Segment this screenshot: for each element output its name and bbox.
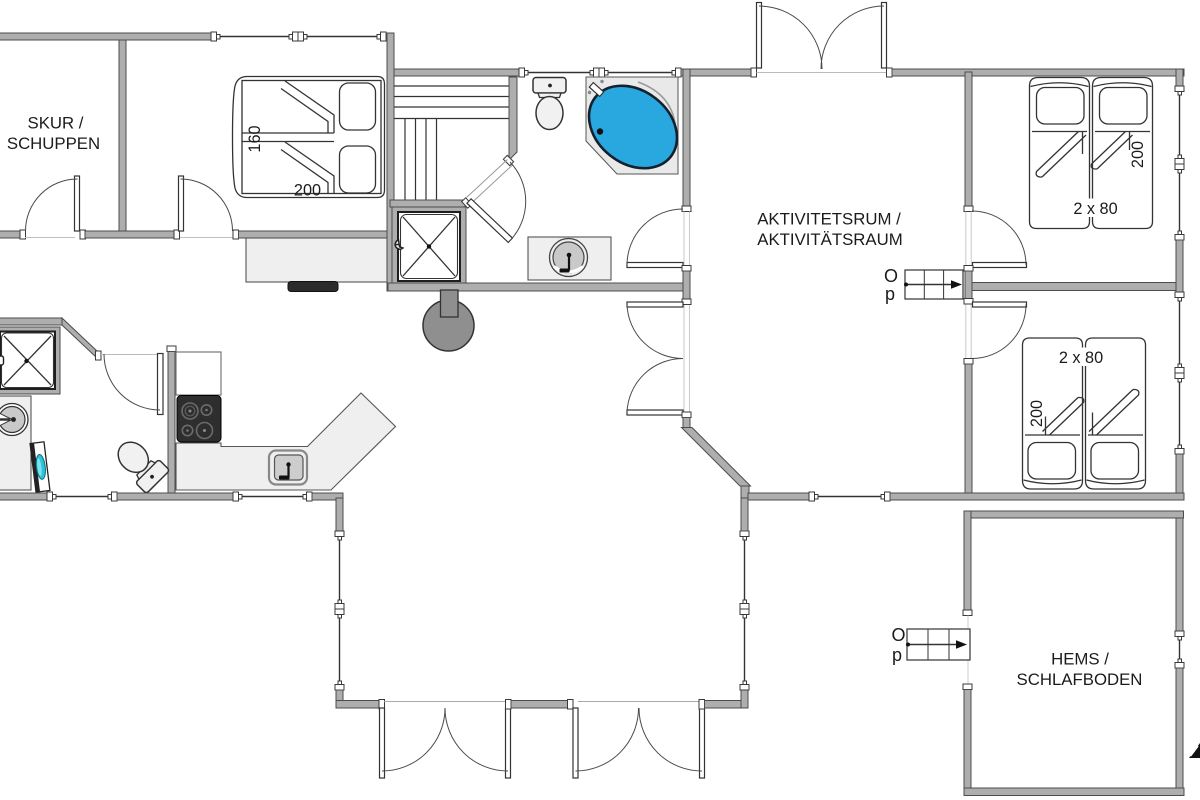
svg-text:p: p: [885, 284, 895, 304]
svg-text:O: O: [892, 625, 906, 645]
svg-text:p: p: [892, 645, 902, 665]
svg-text:2 x 80: 2 x 80: [1073, 200, 1117, 218]
svg-text:160: 160: [246, 125, 264, 152]
svg-text:AKTIVITETSRUM /: AKTIVITETSRUM /: [757, 210, 901, 229]
svg-text:HEMS /: HEMS /: [1051, 650, 1109, 669]
svg-text:SCHUPPEN: SCHUPPEN: [7, 134, 100, 153]
svg-text:200: 200: [294, 182, 321, 200]
svg-text:SCHLAFBODEN: SCHLAFBODEN: [1017, 670, 1143, 689]
svg-text:SKUR /: SKUR /: [28, 114, 84, 133]
svg-text:200: 200: [1028, 400, 1046, 427]
svg-text:O: O: [884, 266, 898, 286]
svg-text:200: 200: [1129, 141, 1147, 168]
svg-text:2 x 80: 2 x 80: [1059, 349, 1103, 367]
svg-text:AKTIVITÄTSRAUM: AKTIVITÄTSRAUM: [757, 230, 902, 249]
